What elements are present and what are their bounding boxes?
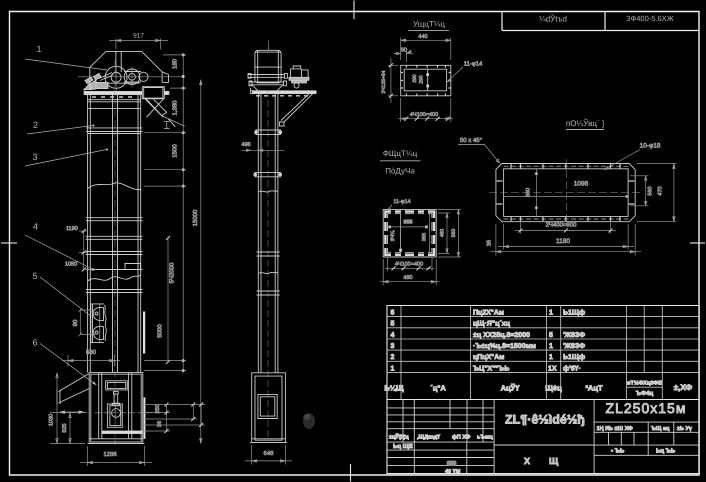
svg-text:360: 360: [526, 188, 532, 197]
svg-text:Ьц ЩΕ: Ьц ЩΕ: [393, 443, 413, 450]
svg-text:4: 4: [391, 332, 395, 339]
svg-text:ФЩцТ¼ц: ФЩцТ¼ц: [383, 149, 418, 158]
svg-text:1500: 1500: [172, 144, 179, 158]
svg-text:470: 470: [658, 186, 664, 195]
svg-text:1: 1: [549, 354, 553, 361]
svg-text:ЪЦ"Х"°ЪЬ: ЪЦ"Х"°ЪЬ: [473, 365, 509, 372]
svg-text:1180: 1180: [556, 238, 570, 245]
svg-text:11-φ14: 11-φ14: [464, 61, 483, 68]
svg-text:11-φ14: 11-φ14: [393, 199, 410, 205]
svg-text:6: 6: [33, 338, 38, 348]
svg-text:1098: 1098: [574, 181, 589, 188]
svg-text:480: 480: [403, 275, 412, 281]
svg-text:1030: 1030: [49, 414, 55, 426]
svg-text:35: 35: [487, 240, 493, 246]
svg-text:1,380: 1,380: [172, 100, 179, 116]
svg-text:±,ХФ: ±,ХФ: [674, 383, 693, 392]
svg-text:825: 825: [62, 423, 68, 432]
svg-text:917: 917: [133, 33, 144, 40]
svg-text:2Ч125+84: 2Ч125+84: [381, 70, 387, 93]
svg-text:1190: 1190: [66, 226, 78, 232]
svg-text:648: 648: [263, 450, 274, 457]
svg-text:2Ч¼: 2Ч¼: [390, 230, 396, 241]
svg-text:1Х: 1Х: [548, 365, 557, 372]
svg-text:·Ъ±ц%ц.8=1500мм: ·Ъ±ц%ц.8=1500мм: [473, 343, 536, 350]
svg-text:Ьц ЪЬ: Ьц ЪЬ: [656, 448, 676, 455]
svg-text:580: 580: [86, 349, 97, 356]
svg-text:´ц°А: ´ц°А: [430, 384, 446, 393]
svg-text:1Ң ЯЬ ±Ш ХФ: 1Ң ЯЬ ±Ш ХФ: [597, 426, 634, 432]
svg-text:40 ҮМ: 40 ҮМ: [445, 469, 461, 475]
svg-text:1050: 1050: [65, 262, 77, 268]
svg-text:фП ХФ: фП ХФ: [452, 435, 471, 441]
svg-text:Ь¼Щ: Ь¼Щ: [384, 384, 404, 393]
svg-text:5Ч2000: 5Ч2000: [169, 262, 176, 283]
svg-text:560: 560: [451, 229, 457, 238]
svg-text:±цЎ(Ң: ±цЎ(Ң: [389, 434, 405, 441]
svg-text:'ц: 'ц: [404, 435, 409, 441]
svg-text:498: 498: [241, 142, 250, 148]
svg-text:36: 36: [157, 421, 163, 427]
svg-text:3Ф400-5.6ХЖ: 3Ф400-5.6ХЖ: [626, 14, 673, 23]
svg-text:560: 560: [648, 186, 654, 195]
svg-text:290: 290: [419, 75, 425, 84]
svg-text:440: 440: [418, 34, 427, 40]
svg-text:4Ч100=400: 4Ч100=400: [395, 262, 423, 268]
svg-text:цЩ·Я"ц´хц: цЩ·Я"ц´хц: [473, 320, 511, 328]
svg-text:280: 280: [412, 74, 418, 83]
svg-text:Щ: Щ: [549, 456, 559, 466]
svg-text:4Ч100=400: 4Ч100=400: [410, 112, 438, 118]
svg-text:655: 655: [403, 220, 412, 226]
svg-text:АцЎҮ: АцЎҮ: [501, 384, 521, 393]
svg-text:вТ½ФХцЗФЕ: вТ½ФХцЗФЕ: [627, 381, 662, 387]
svg-text:ZL¶·ê½ìdé½ђ: ZL¶·ê½ìdé½ђ: [505, 413, 585, 427]
svg-text:5: 5: [33, 271, 38, 281]
svg-text:²АцТ: ²АцТ: [585, 384, 603, 393]
svg-text:Ь1Щф: Ь1Щф: [563, 309, 585, 317]
svg-text:±Ь Уү: ±Ь Уү: [677, 426, 693, 432]
svg-text:1: 1: [549, 343, 553, 350]
svg-text:1: 1: [549, 310, 553, 317]
svg-text:Ь1Щф: Ь1Щф: [563, 353, 585, 361]
svg-text:2: 2: [391, 354, 395, 361]
svg-text:5: 5: [391, 321, 395, 328]
svg-text:3: 3: [391, 343, 395, 350]
svg-text:'Ж6ЗФ: 'Ж6ЗФ: [563, 332, 585, 339]
svg-text:1: 1: [37, 44, 42, 54]
svg-text:15000: 15000: [192, 209, 199, 226]
svg-text:пΟ¼Ўвц´ ]: пΟ¼Ўвц´ ]: [566, 118, 604, 128]
svg-text:ZL250x15м: ZL250x15м: [606, 400, 687, 416]
svg-text:Х: Х: [524, 456, 530, 466]
svg-text:5: 5: [549, 332, 553, 339]
svg-text:180: 180: [172, 58, 179, 69]
svg-text:▪ ЪЬ: ▪ ЪЬ: [611, 448, 625, 455]
svg-text:ьЪмц: ьЪмц: [477, 435, 493, 441]
svg-text:4: 4: [33, 222, 38, 232]
svg-text:ПòДуЧə: ПòДуЧə: [385, 167, 415, 176]
svg-text:250: 250: [155, 404, 161, 413]
svg-text:1286: 1286: [103, 451, 117, 458]
svg-text:10-φ18: 10-φ18: [640, 143, 661, 150]
svg-text:±ц ХХ25ц.8=2000: ±ц ХХ25ц.8=2000: [473, 332, 530, 339]
svg-text:6: 6: [391, 310, 395, 317]
svg-text:3: 3: [33, 152, 38, 162]
svg-text:ф'6Ү·: ф'6Ү·: [563, 364, 581, 372]
svg-text:¼dЎtъd: ¼dЎtъd: [539, 14, 567, 24]
svg-text:355: 355: [422, 233, 428, 242]
svg-text:460: 460: [440, 229, 446, 238]
svg-text:,ЩДкздҮ: ,ЩДкздҮ: [417, 435, 441, 441]
svg-text:ЪФ4ц: ЪФ4ц: [636, 390, 654, 397]
svg-text:УщцТ¼ц: УщцТ¼ц: [413, 20, 445, 29]
svg-text:50 x 45°: 50 x 45°: [460, 137, 483, 144]
svg-text:1: 1: [391, 365, 395, 372]
svg-text:ЪЩ ац: ЪЩ ац: [651, 426, 670, 432]
svg-text:цПцХ°Ам: цПцХ°Ам: [473, 354, 504, 361]
svg-text:Щ¢ц: Щ¢ц: [545, 384, 562, 393]
svg-text:90: 90: [72, 319, 79, 326]
svg-text:2Ч400=800: 2Ч400=800: [546, 222, 578, 229]
svg-text:Пц2Х°Ам: Пц2Х°Ам: [473, 310, 504, 317]
svg-text:2: 2: [33, 120, 38, 130]
svg-text:'Ж6ЗФ: 'Ж6ЗФ: [563, 343, 585, 350]
svg-text:5000: 5000: [157, 324, 164, 338]
